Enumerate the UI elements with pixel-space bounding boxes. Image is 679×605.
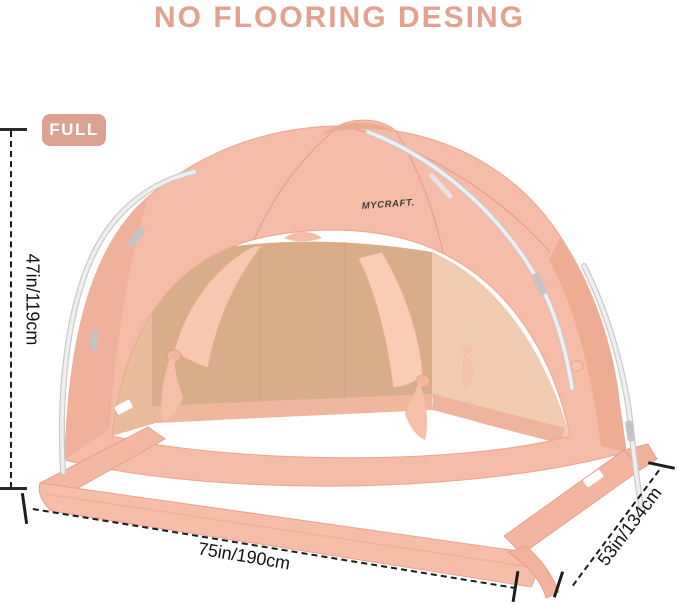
height-dimension-label: 47in/119cm (22, 230, 43, 370)
velcro-patch (321, 497, 342, 509)
pole-joint (93, 334, 95, 347)
velcro-patch (231, 484, 258, 498)
height-dimension-line (10, 131, 12, 488)
interior-tie-knot (461, 345, 473, 355)
velcro-patch (444, 517, 463, 527)
product-image: NO FLOORING DESING FULL (0, 0, 679, 605)
height-dimension-cap-bottom (0, 487, 27, 490)
side-tie-knot (571, 361, 583, 371)
tent-illustration: MYCRAFT. (0, 0, 679, 605)
flap-top-fold (284, 232, 322, 241)
height-dimension-cap-top (0, 128, 27, 131)
pole-joint (629, 424, 631, 438)
